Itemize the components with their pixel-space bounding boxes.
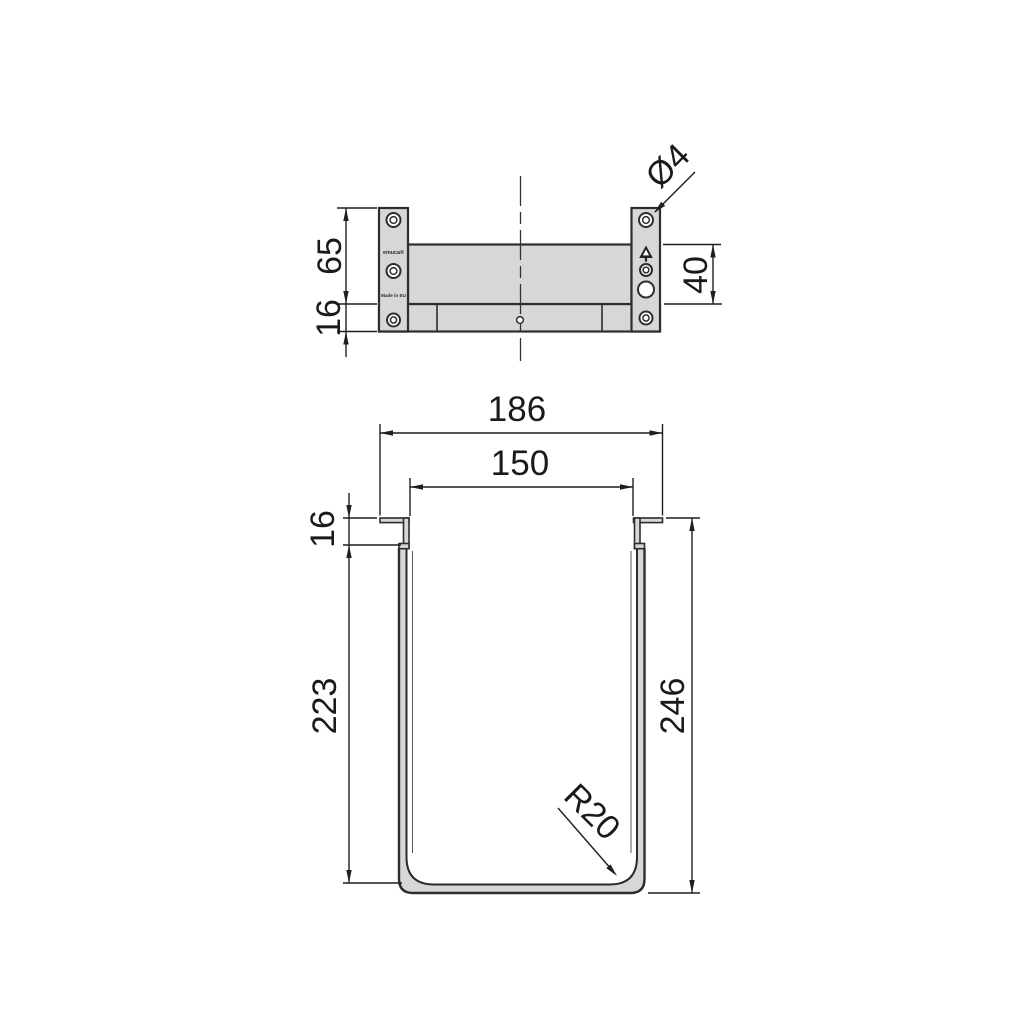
dim-outer-height: 246	[654, 678, 692, 735]
back-panel	[408, 245, 632, 305]
front-view: 186 150 16 223	[304, 390, 700, 893]
dim-246: 246	[648, 518, 700, 893]
dim-150: 150	[410, 444, 633, 516]
center-hole	[517, 317, 524, 324]
large-hole	[638, 282, 654, 298]
dim-base-thickness: 16	[310, 299, 348, 337]
left-flange	[380, 518, 409, 549]
dim-side-height: 65	[311, 237, 349, 275]
dim-flange-height: 16	[304, 510, 342, 548]
top-view: emuca® Made in EU 65 16 40 Ø4	[310, 137, 722, 361]
dimension-drawing: emuca® Made in EU 65 16 40 Ø4	[0, 0, 1024, 1024]
technical-drawing-canvas: emuca® Made in EU 65 16 40 Ø4	[0, 0, 1024, 1024]
dim-outer-width: 186	[488, 390, 546, 429]
dim-inner-width: 150	[491, 444, 549, 483]
dim-hole-diameter-label: Ø4	[639, 137, 698, 196]
origin-label: Made in EU	[381, 293, 406, 298]
dim-65-16: 65 16	[310, 208, 377, 357]
brand-label: emuca®	[383, 249, 404, 256]
dim-16-223: 16 223	[304, 493, 402, 883]
right-flange	[634, 518, 663, 549]
dim-hole-diameter: Ø4	[639, 137, 698, 213]
dim-back-panel-height: 40	[677, 256, 715, 294]
dim-inner-depth: 223	[306, 678, 344, 735]
dim-40: 40	[663, 245, 722, 305]
